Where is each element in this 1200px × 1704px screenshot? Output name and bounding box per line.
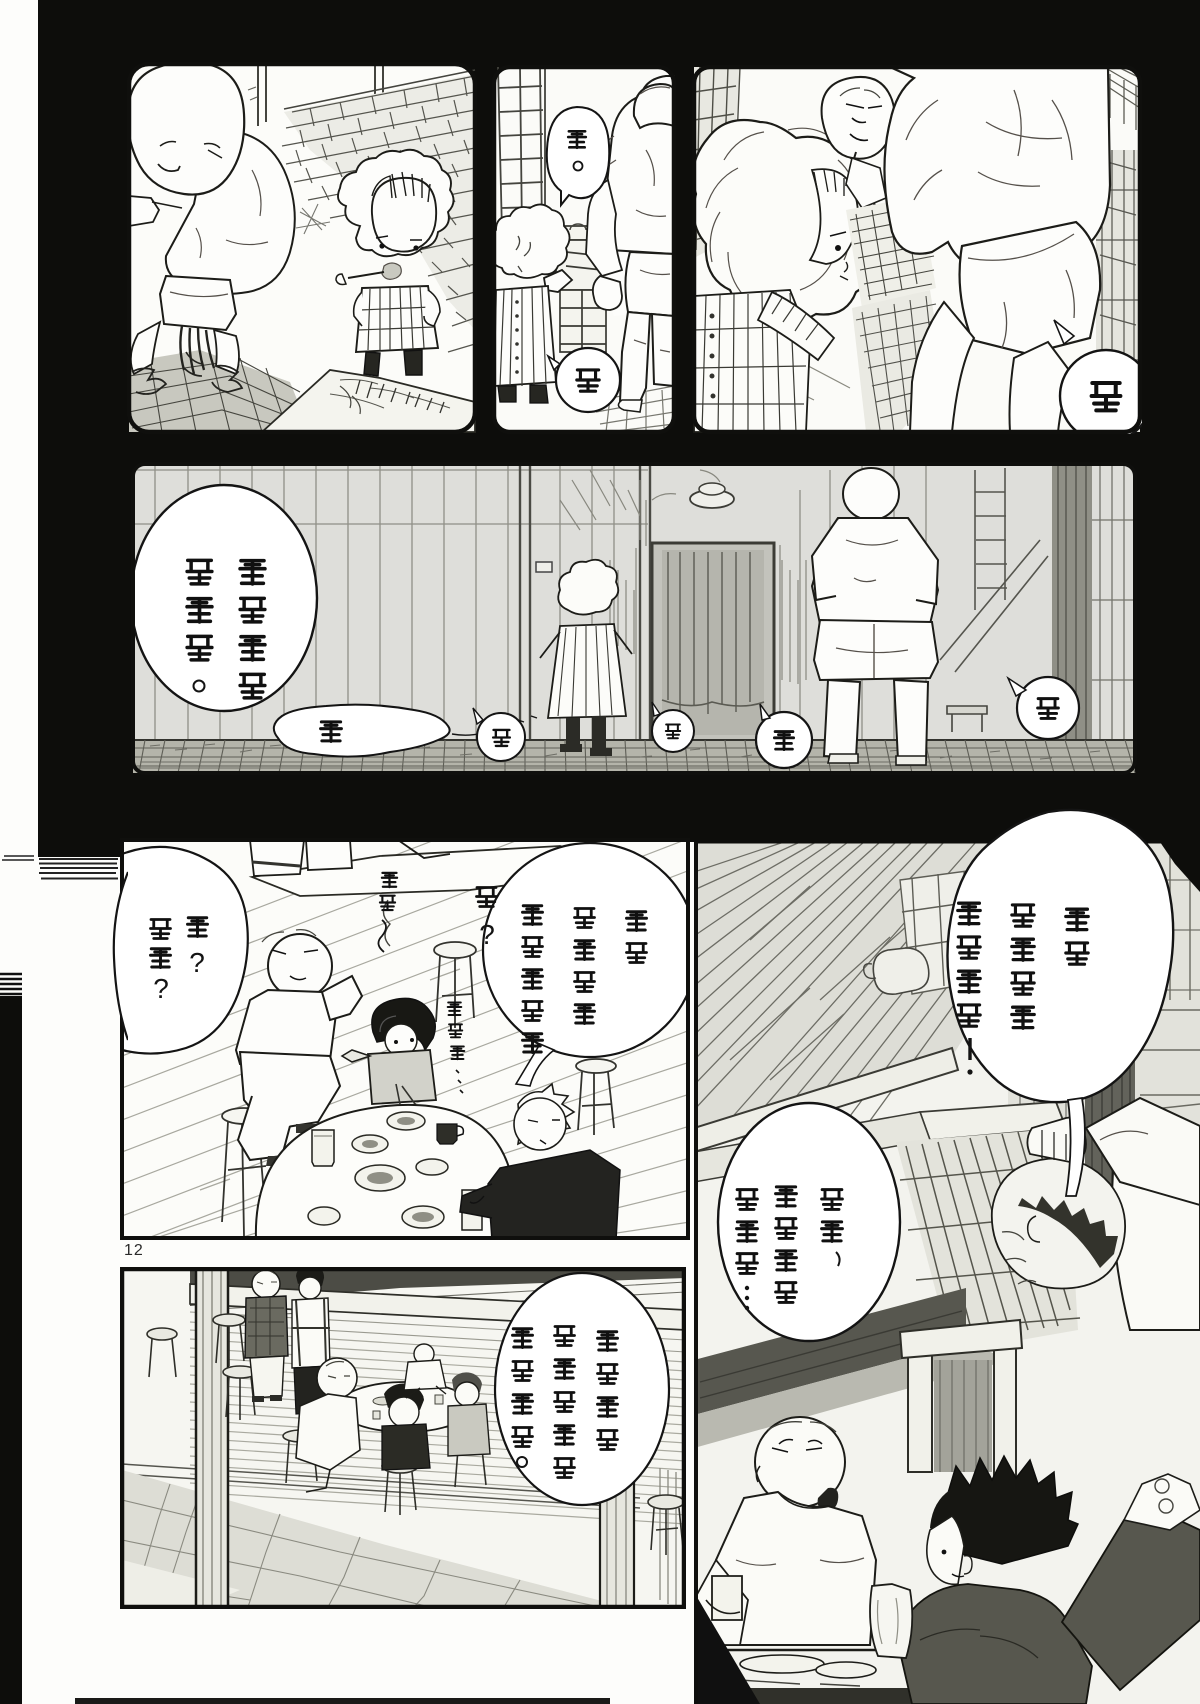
svg-text:?: ?: [189, 947, 205, 978]
svg-text:?: ?: [153, 973, 169, 1004]
svg-text:?: ?: [479, 919, 495, 950]
